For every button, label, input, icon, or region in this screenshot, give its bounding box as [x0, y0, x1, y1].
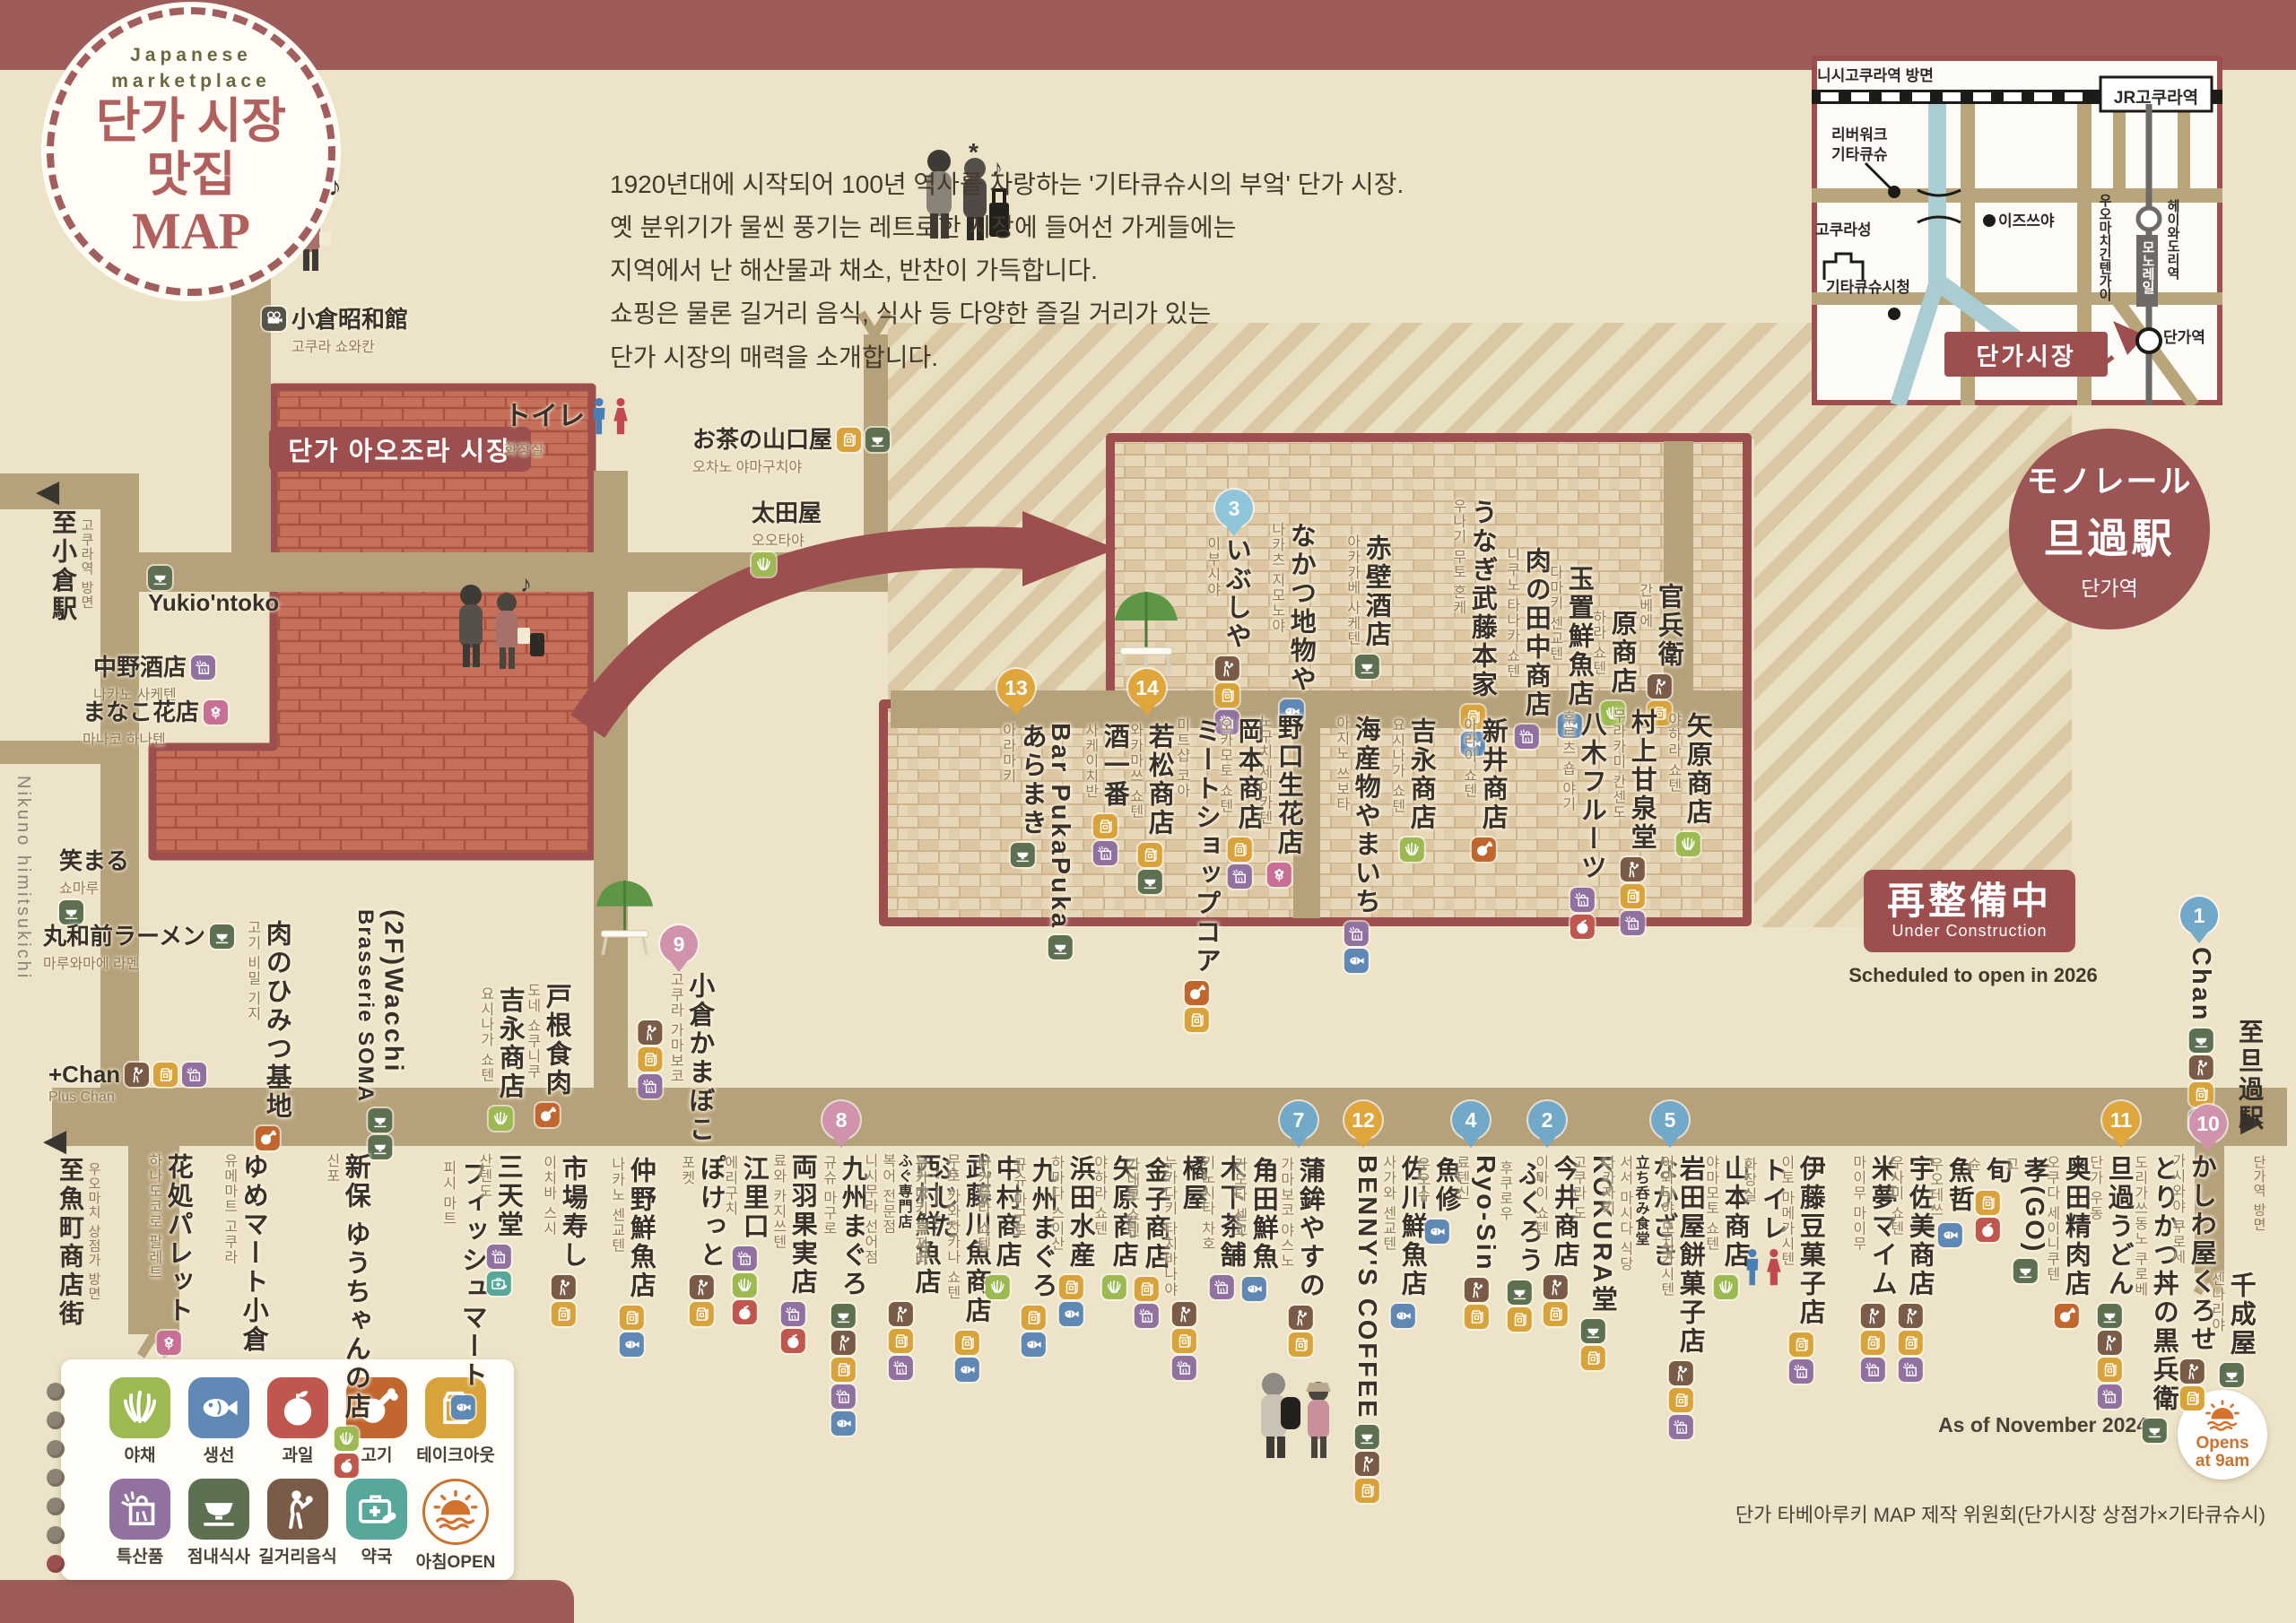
street-icon	[1465, 1278, 1489, 1302]
shop-reading: 누카다키 후지타	[911, 1155, 927, 1266]
shop-reading: Plus Chan	[48, 1089, 206, 1106]
dinein-icon	[59, 900, 83, 924]
side-vertical-text: Nikuno himitsukichi	[13, 776, 33, 980]
specialty-icon	[733, 1246, 757, 1271]
shop-reading: 화장실	[504, 438, 631, 459]
shop-prefix-reading: 서서 마시다 식당	[1616, 1155, 1632, 1271]
shop-reading: 가도타 센교	[1231, 1157, 1247, 1271]
takeout-icon	[620, 1306, 644, 1330]
specialty-icon	[1669, 1415, 1693, 1439]
shop-label: Ryo-Sin료텐신	[1453, 1155, 1500, 1329]
street-icon	[638, 1020, 662, 1045]
takeout-icon	[1022, 1306, 1046, 1330]
legend-item-morning: 아침OPEN	[416, 1479, 495, 1573]
shop-reading: 화장실	[1740, 1157, 1756, 1243]
shop-reading: 고쿠라 도	[1570, 1155, 1586, 1314]
shop-name: あらまき	[1017, 723, 1046, 838]
construction-note: Scheduled to open in 2026	[1848, 964, 2099, 987]
shop-label: ゆめマート小倉유메마트 고쿠라	[221, 1153, 267, 1354]
shop-label: 小倉昭和館고쿠라 쇼와칸	[262, 307, 408, 356]
takeout-icon	[2180, 1386, 2205, 1410]
shop-reading: 우사미 쇼텐	[1887, 1155, 1903, 1298]
shop-label: 若松商店와카마쓰 쇼텐	[1126, 723, 1173, 894]
spiral-ring	[47, 1526, 65, 1544]
street-icon	[831, 1331, 856, 1355]
shop-label: 花処パレット하나도코로 팔레트	[145, 1153, 192, 1355]
map-marker-14: 14	[1128, 669, 1166, 707]
shop-name: 赤壁酒店	[1361, 534, 1390, 649]
spiral-ring	[47, 1497, 65, 1515]
dinein-icon	[1355, 1425, 1379, 1449]
shop-label: 新井商店아라이 쇼텐	[1460, 717, 1507, 862]
shop-reading: 가마보코 야스노	[1277, 1157, 1293, 1300]
shop-reading: 야마모토 쇼텐	[1702, 1155, 1718, 1270]
shop-reading: 마이무 마이무	[1849, 1155, 1865, 1298]
shop-reading: 나카무라 쇼텐	[974, 1155, 990, 1270]
direction-arrow: ◀	[43, 1123, 66, 1159]
direction-label: 至旦過駅	[2231, 1019, 2267, 1133]
specialty-icon	[1093, 841, 1118, 865]
shop-reading: 아카카베 사케텐	[1344, 534, 1360, 649]
dinein-icon	[1508, 1280, 1532, 1305]
monorail-station-badge: モノレール 旦過駅 단가역	[2009, 429, 2210, 629]
restroom-icon	[589, 397, 631, 437]
shop-reading: 아라마키	[999, 723, 1015, 838]
takeout-icon	[1185, 1008, 1209, 1032]
fish-icon	[1344, 949, 1369, 973]
tanga-market-map: Japanese marketplace 단가 시장 맛집 MAP 1920년대…	[0, 0, 2296, 1623]
shop-reading: 미트샵 코아	[1173, 717, 1189, 976]
spiral-ring	[47, 1555, 65, 1573]
shop-name: 八木フルーツ	[1577, 710, 1605, 882]
shop-reading: 유메마트 고쿠라	[221, 1153, 237, 1354]
shop-label: いぶしや이부시야	[1204, 536, 1250, 734]
takeout-icon	[552, 1302, 576, 1326]
shop-label: 三天堂산텐도	[475, 1153, 522, 1296]
fish-icon	[1059, 1302, 1083, 1326]
pharmacy-icon	[346, 1479, 407, 1540]
shop-reading: 나카노 센교텐	[608, 1157, 624, 1300]
legend-item-fish: 생선	[179, 1377, 258, 1466]
shop-label: 吉永商店요시나가 쇼텐	[477, 986, 524, 1131]
fruit-icon	[1976, 1218, 2000, 1242]
shop-label: 伊藤豆菓子店이토 마메가시텐	[1778, 1155, 1824, 1384]
shop-label: Yukio'ntoko	[148, 563, 279, 617]
map-marker-10: 10	[2189, 1105, 2227, 1142]
shop-name: Chan	[2187, 947, 2215, 1023]
street-icon	[690, 1275, 714, 1299]
takeout-icon	[1669, 1388, 1693, 1412]
shop-label: お茶の山口屋오차노 야마구치야	[692, 427, 890, 476]
shop-reading: 누카다키 타치바나야	[1161, 1155, 1177, 1297]
map-marker-11: 11	[2102, 1101, 2140, 1139]
shop-reading: 나카자키	[1598, 1155, 1614, 1271]
shop-prefix: ふぐ専門店	[895, 1153, 911, 1297]
pharmacy-icon	[487, 1271, 511, 1296]
shop-name: 矢原商店	[1683, 712, 1711, 827]
shop-label: 矢原商店야하라 쇼텐	[1665, 712, 1711, 856]
takeout-icon	[1355, 1479, 1379, 1503]
shop-reading: 신포	[323, 1153, 339, 1421]
shop-name: Bar PukaPuka	[1046, 723, 1074, 930]
shop-name: 若松商店	[1144, 723, 1173, 838]
direction-label: 至小倉駅	[45, 509, 81, 624]
shop-name: トイレ	[504, 402, 585, 433]
shop-name: 海産物やまいち	[1351, 716, 1379, 916]
shop-name: (2F)Wacchi	[378, 909, 407, 1103]
inset-label: 니시고쿠라역 방면	[1817, 63, 1934, 85]
shop-reading: 무라카미 칸센도	[1609, 708, 1625, 852]
shop-reading: 고기 비밀 기지	[244, 920, 260, 1121]
shop-label: 千成屋센나리야	[2208, 1271, 2255, 1387]
takeout-icon	[638, 1047, 662, 1072]
specialty-icon	[191, 655, 215, 680]
logo-badge: Japanese marketplace 단가 시장 맛집 MAP	[47, 7, 335, 296]
street-icon	[267, 1479, 328, 1540]
shop-name: +Chan	[48, 1062, 120, 1089]
shop-label: 八木フルーツ후르츠 숍 야기	[1559, 710, 1605, 939]
takeout-icon	[1172, 1329, 1196, 1353]
shop-name: 伊藤豆菓子店	[1796, 1155, 1824, 1327]
specialty-icon	[831, 1384, 856, 1409]
map-marker-8: 8	[822, 1101, 860, 1139]
badge-line2: 旦過駅	[2043, 506, 2175, 564]
takeout-icon	[2189, 1082, 2213, 1107]
shop-reading: 하나도코로 팔레트	[145, 1153, 161, 1325]
fish-icon	[1242, 1277, 1266, 1301]
shop-label: 九州まぐろ규슈 마구로	[820, 1155, 866, 1436]
map-marker-3: 3	[1215, 490, 1253, 527]
shop-label: Bar PukaPuka	[1046, 723, 1074, 959]
specialty-icon	[1515, 725, 1539, 749]
fish-icon	[955, 1358, 979, 1382]
shop-label: あらまき아라마키	[999, 723, 1046, 867]
intro-line: 옛 분위기가 물씬 풍기는 레트로한 시장에 들어선 가게들에는	[610, 206, 1489, 249]
specialty-icon	[1789, 1359, 1813, 1384]
shop-reading: 가시와야 쿠로세	[2169, 1153, 2185, 1354]
veg-icon	[1676, 832, 1700, 856]
specialty-icon	[1135, 1304, 1159, 1328]
logo-title-line1: 단가 시장	[96, 94, 286, 148]
shop-reading: 규슈 마구로	[1010, 1157, 1026, 1300]
shop-reading: 슌	[1964, 1157, 1980, 1185]
shop-name: 両羽果実店	[787, 1153, 816, 1297]
shop-reading: 아지노 쓰보타	[1333, 716, 1349, 916]
shop-reading: 간베에	[1636, 583, 1652, 669]
legend-item-specialty: 특산품	[100, 1479, 179, 1573]
intro-line: 단가 시장의 매력을 소개합니다.	[610, 336, 1489, 379]
legend-label: 과일	[283, 1442, 314, 1466]
shop-name: 小倉かまぼこ	[684, 972, 713, 1144]
shop-label: 笑まる쇼마루	[59, 848, 129, 924]
shop-prefix-reading: 복어 전문점	[879, 1153, 895, 1297]
legend-label: 생선	[204, 1442, 235, 1466]
shop-name: まなこ花店	[83, 699, 199, 726]
shop-reading: 쇼마루	[59, 876, 129, 898]
shop-reading: 이부시야	[1204, 536, 1220, 651]
shop-label: BENNY'S COFFEE	[1352, 1155, 1381, 1503]
shop-label: 中野酒店나카노 사케텐	[93, 655, 215, 704]
takeout-icon	[889, 1329, 913, 1353]
flower-icon	[157, 1331, 181, 1355]
takeout-icon	[1228, 838, 1252, 862]
shop-name: 岩田屋餅菓子店	[1675, 1155, 1704, 1356]
shop-reading: 니시무라 선어점	[861, 1153, 877, 1297]
shop-reading: 사가와 센교텐	[1379, 1155, 1396, 1298]
shop-reading: 고쿠라 쇼와칸	[291, 334, 408, 356]
meat-icon	[1472, 838, 1496, 862]
shop-reading: 산텐도	[475, 1153, 491, 1239]
direction-label-korean: 고쿠라역 방면	[77, 518, 96, 609]
street-icon	[1861, 1304, 1885, 1328]
shop-reading: 야하라 쇼텐	[1091, 1155, 1107, 1270]
street-icon	[1172, 1302, 1196, 1326]
inset-label: 단가시장	[1944, 332, 2108, 377]
shop-name: 肉のひみつ基地	[262, 920, 291, 1121]
shop-name: 太田屋	[752, 500, 822, 527]
shop-label: ミートショップコア미트샵 코아	[1173, 717, 1220, 1032]
map-marker-7: 7	[1280, 1101, 1318, 1139]
veg-icon	[1400, 838, 1424, 862]
under-construction-box: 再整備中 Under Construction	[1864, 870, 2075, 952]
inset-label: 기타큐슈	[1831, 142, 1888, 164]
shop-label: 太田屋오오타야	[752, 500, 822, 577]
shop-label: 浜田水産하마다 스이산	[1048, 1155, 1094, 1326]
people-illustration-couple-bottom	[1261, 1373, 1331, 1458]
intro-line: 지역에서 난 해산물과 채소, 반찬이 가득합니다.	[610, 249, 1489, 292]
shop-reading: 야하라 쇼텐	[1665, 712, 1681, 827]
legend-label: 길거리음식	[258, 1543, 336, 1567]
shop-reading: 하라 쇼텐	[1589, 610, 1605, 696]
shop-reading: 하마다 스이산	[1048, 1155, 1064, 1270]
direction-arrow: ◀	[36, 473, 59, 509]
shop-reading: 에리구치	[721, 1155, 737, 1241]
fish-icon	[1425, 1219, 1449, 1244]
construction-title: 再整備中	[1864, 881, 2075, 921]
takeout-icon	[1215, 683, 1239, 707]
shop-reading: 피시 마트	[439, 1160, 456, 1390]
fish-icon	[188, 1377, 249, 1438]
fish-icon	[620, 1332, 644, 1357]
dinein-icon	[1355, 655, 1379, 679]
takeout-icon	[1789, 1332, 1813, 1357]
shop-reading: 와카마쓰 쇼텐	[1126, 723, 1143, 838]
takeout-icon	[1508, 1307, 1532, 1332]
shop-label: 赤壁酒店아카카베 사케텐	[1344, 534, 1390, 679]
specialty-icon	[1899, 1358, 1923, 1382]
shop-label: トイレ화장실	[504, 397, 631, 459]
shop-reading: 단가 우동	[2086, 1155, 2102, 1298]
shop-name: BENNY'S COFFEE	[1352, 1155, 1381, 1419]
specialty-icon	[1344, 922, 1369, 946]
street-icon	[1621, 857, 1645, 881]
street-icon	[1215, 656, 1239, 681]
shop-label: 丸和前ラーメン마루와마에 라멘	[43, 924, 234, 973]
shop-name: 蒲鉾やすの	[1295, 1157, 1324, 1300]
shop-reading: 후쿠로우	[1496, 1160, 1512, 1275]
shop-name: 新保 ゆうちゃんの店	[341, 1153, 370, 1421]
street-icon	[1899, 1304, 1923, 1328]
shop-name: 酒一番	[1100, 723, 1128, 809]
shop-reading: 기노시타 차호	[1198, 1155, 1214, 1270]
dinein-icon	[148, 566, 172, 590]
meat-icon	[2055, 1304, 2079, 1328]
shop-label: 孝(GO)고	[2002, 1157, 2048, 1283]
shop-reading: 이치바 스시	[540, 1155, 556, 1270]
shop-reading: 마나코 하나텐	[83, 727, 228, 749]
shop-name: 丸和前ラーメン	[43, 924, 205, 950]
shop-reading: 이토 마메가시텐	[1778, 1155, 1794, 1327]
shop-name: 村上甘泉堂	[1627, 708, 1656, 852]
fruit-icon	[781, 1329, 805, 1353]
takeout-icon	[1899, 1331, 1923, 1355]
fish-icon	[1022, 1332, 1046, 1357]
street-icon	[1289, 1306, 1313, 1330]
shop-reading: 나카츠 지모노야	[1268, 522, 1284, 694]
street-icon	[2180, 1359, 2205, 1384]
legend-label: 약국	[361, 1543, 393, 1567]
flower-icon	[1267, 863, 1291, 887]
shop-name: 角田鮮魚	[1248, 1157, 1277, 1271]
specialty-icon	[1861, 1358, 1885, 1382]
direction-label: 至魚町商店街	[52, 1157, 88, 1329]
shop-name: 吉永商店	[495, 986, 524, 1101]
takeout-icon	[1621, 884, 1645, 908]
shop-reading: 규슈 마구로	[820, 1155, 836, 1298]
inset-label: JR고쿠라역	[2104, 84, 2208, 108]
map-marker-5: 5	[1651, 1101, 1689, 1139]
fruit-icon	[733, 1300, 757, 1324]
dinein-icon	[210, 924, 234, 949]
shop-name: お茶の山口屋	[692, 427, 832, 454]
specialty-icon	[889, 1356, 913, 1380]
takeout-icon	[2098, 1358, 2122, 1382]
map-marker-4: 4	[1452, 1101, 1490, 1139]
shop-reading: 우오테쓰	[1926, 1157, 1943, 1218]
takeout-icon	[1289, 1332, 1313, 1357]
shop-reading: 오카모토 쇼텐	[1216, 717, 1232, 832]
shop-name: なかつ地物や	[1286, 522, 1315, 694]
inset-label: 고쿠라성	[1815, 217, 1872, 239]
fruit-icon	[335, 1454, 359, 1478]
dinein-icon	[865, 428, 890, 452]
shop-label: 蒲鉾やすの가마보코 야스노	[1277, 1157, 1324, 1357]
dinein-icon	[369, 1108, 393, 1133]
specialty-icon	[1621, 911, 1645, 935]
specialty-icon	[1570, 888, 1595, 912]
veg-icon	[489, 1107, 513, 1131]
legend-label: 점내식사	[187, 1543, 250, 1567]
street-icon	[1669, 1361, 1693, 1385]
spiral-ring	[47, 1469, 65, 1487]
shop-name: 官兵衛	[1654, 583, 1683, 669]
shop-name: 三天堂	[493, 1153, 522, 1239]
shop-reading: 이마이 쇼텐	[1532, 1155, 1548, 1270]
shop-label: 吉永商店요시나가 쇼텐	[1388, 717, 1435, 862]
inset-label: 우오마치긴텐가이	[2095, 194, 2114, 301]
shop-label: なかつ地物や나카츠 지모노야	[1268, 522, 1315, 724]
shop-label: 角田鮮魚가도타 센교	[1231, 1157, 1277, 1301]
spiral-ring	[47, 1411, 65, 1429]
shop-name: 千成屋	[2226, 1271, 2255, 1358]
map-marker-2: 2	[1528, 1101, 1566, 1139]
fish-icon	[451, 1395, 475, 1419]
shop-label: 旦過うどん단가 우동	[2086, 1155, 2133, 1409]
specialty-icon	[109, 1479, 170, 1540]
specialty-icon	[487, 1245, 511, 1269]
shop-name: 中野酒店	[93, 655, 187, 681]
shop-label: まなこ花店마나코 하나텐	[83, 699, 228, 749]
shop-name: 野口生花店	[1274, 714, 1302, 857]
takeout-icon	[1135, 1277, 1159, 1301]
specialty-icon	[638, 1074, 662, 1098]
music-note: ♪	[328, 172, 342, 203]
takeout-icon	[1093, 814, 1118, 838]
intro-line: 1920년대에 시작되어 100년 역사를 자랑하는 '기타큐슈시의 부엌' 단…	[610, 163, 1489, 206]
shop-name: 花処パレット	[163, 1153, 192, 1325]
inset-label: 단가역	[2163, 325, 2205, 347]
shop-reading: 우오슈	[1413, 1157, 1430, 1214]
shop-reading: 센나리야	[2208, 1271, 2224, 1358]
dinein-icon	[369, 1135, 393, 1159]
shop-label: 野口生花店노구치 세이카텐	[1256, 714, 1302, 887]
takeout-icon	[1976, 1191, 2000, 1215]
shop-name: Yukio'ntoko	[148, 590, 279, 617]
shop-name: 小倉昭和館	[291, 307, 408, 334]
direction-label-korean: 우오마치 상점가 방면	[84, 1162, 103, 1300]
inset-label: 모노레일	[2138, 240, 2157, 294]
shop-reading: 도네 쇼쿠니쿠	[524, 983, 540, 1098]
takeout-icon	[1544, 1302, 1568, 1326]
shop-label: 奥田精肉店오쿠다 세이니쿠텐	[2043, 1155, 2090, 1328]
takeout-icon	[153, 1063, 178, 1087]
dinein-icon	[2189, 1028, 2213, 1053]
badge-line3: 단가역	[2081, 571, 2137, 602]
direction-label-korean: 단가역 방면	[2249, 1155, 2268, 1231]
shop-reading: 오쿠다 세이니쿠텐	[2043, 1155, 2059, 1298]
shop-reading: 가네코 쇼텐	[1123, 1157, 1139, 1271]
shop-label: 肉のひみつ基地고기 비밀 기지	[244, 920, 291, 1150]
shop-reading: 우나기 무토 혼케	[1449, 499, 1465, 699]
shop-name: いぶしや	[1222, 536, 1250, 651]
music-note: ♪	[520, 570, 532, 598]
logo-sub2: marketplace	[111, 71, 271, 91]
specialty-icon	[1172, 1356, 1196, 1380]
shop-reading: 요시나가 쇼텐	[1388, 717, 1405, 832]
specialty-icon	[1228, 864, 1252, 889]
shop-label: 岩田屋餅菓子店이와타야 모치카시텐	[1657, 1155, 1704, 1439]
shop-reading: 아라이 쇼텐	[1460, 717, 1476, 832]
shop-label: 肉の田中商店니쿠노 타나카 쇼텐	[1503, 547, 1550, 749]
aozora-market-label: 단가 아오조라 시장	[269, 427, 531, 472]
spiral-ring	[47, 1383, 65, 1401]
street-icon	[1355, 1452, 1379, 1476]
spiral-ring	[47, 1440, 65, 1458]
legend-item-dinein: 점내식사	[179, 1479, 258, 1573]
dinein-icon	[1581, 1319, 1605, 1343]
meat-icon	[535, 1103, 560, 1127]
as-of-date: As of November 2024	[1938, 1413, 2148, 1437]
fruit-icon	[267, 1377, 328, 1438]
shop-name: 新井商店	[1478, 717, 1507, 832]
inset-label: 기타큐슈시청	[1826, 274, 1910, 297]
shop-name: 原商店	[1607, 610, 1636, 696]
dinein-icon	[2098, 1304, 2122, 1328]
shop-reading: 마루와마에 라멘	[43, 951, 234, 973]
sparkle-mark: *	[969, 138, 978, 167]
dinein-icon	[2143, 1419, 2167, 1443]
specialty-icon	[182, 1063, 206, 1087]
